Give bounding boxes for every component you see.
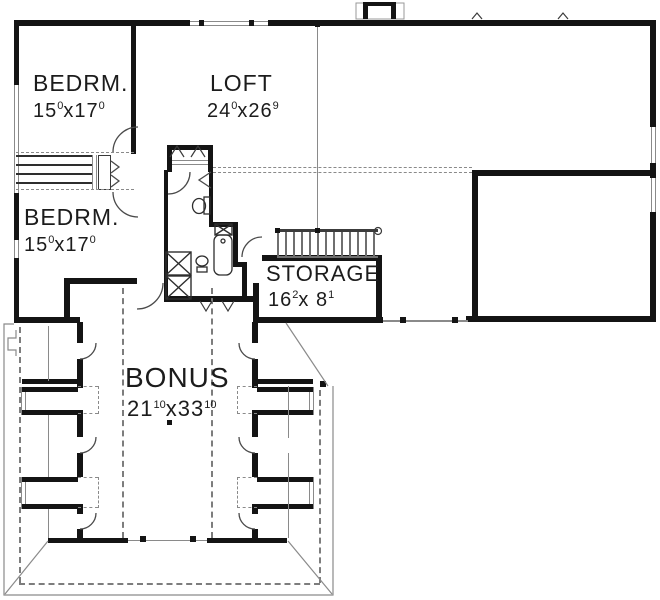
chimney-icon bbox=[356, 2, 404, 19]
dim-mult: x bbox=[298, 289, 316, 311]
room-dims-bedroom-lower: 150x170 bbox=[24, 234, 96, 257]
sink-pedestal-icon bbox=[197, 267, 207, 272]
dim-value: 26 bbox=[248, 100, 272, 122]
dim-value: 15 bbox=[24, 234, 48, 256]
newel-post-icon bbox=[375, 228, 382, 235]
dim-value: 17 bbox=[65, 234, 89, 256]
dim-mult: x bbox=[63, 100, 74, 122]
room-label-loft: LOFT bbox=[210, 70, 273, 97]
dim-sup: 10 bbox=[204, 399, 216, 411]
dim-mult: x bbox=[166, 396, 178, 421]
bonus-post-marker bbox=[167, 420, 172, 425]
bath-fixtures bbox=[193, 197, 233, 275]
sink-icon bbox=[196, 256, 208, 266]
room-label-bedroom-lower: BEDRM. bbox=[24, 204, 119, 231]
dim-mult: x bbox=[237, 100, 248, 122]
dim-sup: 1 bbox=[328, 289, 334, 301]
dim-value: 17 bbox=[74, 100, 98, 122]
room-label-storage: STORAGE bbox=[266, 261, 380, 287]
dim-value: 15 bbox=[33, 100, 57, 122]
railing-posts bbox=[275, 228, 320, 233]
door-arcs bbox=[80, 127, 262, 529]
dim-sup: 9 bbox=[273, 100, 279, 112]
dim-mult: x bbox=[54, 234, 65, 256]
room-dims-loft: 240x269 bbox=[207, 100, 279, 123]
room-dims-bonus: 2110x3310 bbox=[127, 396, 216, 422]
bathtub-icon bbox=[214, 235, 232, 275]
dim-value: 16 bbox=[268, 289, 292, 311]
dim-sup: 0 bbox=[90, 234, 96, 246]
chase-x-boxes bbox=[166, 224, 232, 299]
dim-value: 24 bbox=[207, 100, 231, 122]
room-label-bonus: BONUS bbox=[125, 362, 230, 394]
room-dims-bedroom-upper: 150x170 bbox=[33, 100, 105, 123]
room-label-bedroom-upper: BEDRM. bbox=[33, 70, 128, 97]
dim-sup: 0 bbox=[99, 100, 105, 112]
dim-value: 33 bbox=[178, 396, 204, 421]
floor-plan-canvas: BEDRM. 150x170 LOFT 240x269 BEDRM. 150x1… bbox=[0, 0, 660, 600]
dim-sup: 10 bbox=[153, 399, 165, 411]
room-dims-storage: 162x 81 bbox=[268, 289, 334, 312]
tub-drain-icon bbox=[221, 239, 225, 243]
dim-value: 8 bbox=[316, 289, 328, 311]
dim-value: 21 bbox=[127, 396, 153, 421]
